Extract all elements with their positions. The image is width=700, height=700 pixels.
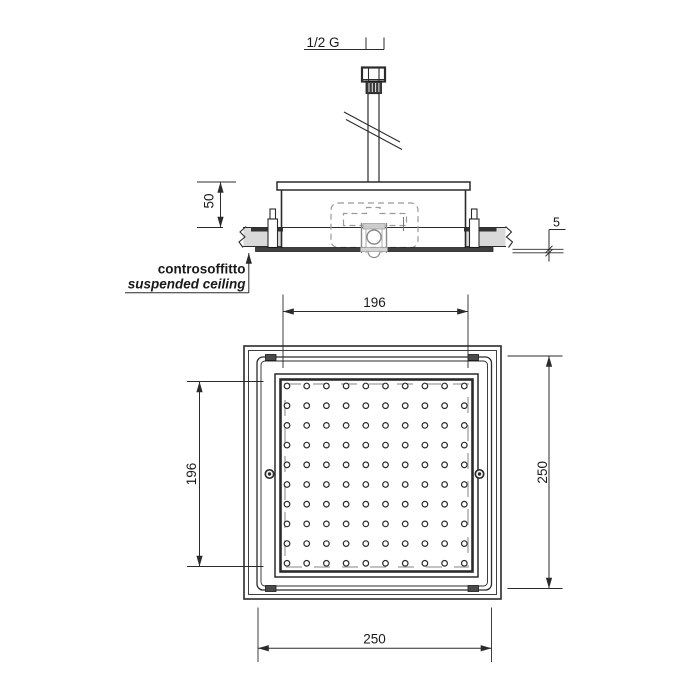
nozzle: [422, 541, 428, 547]
nozzle: [442, 423, 448, 429]
nozzle: [324, 462, 330, 468]
elbow-bottom-arc: [368, 252, 380, 258]
nozzle: [363, 423, 369, 429]
nozzle: [343, 383, 349, 389]
clamp-screw-left: [268, 219, 278, 248]
elbow-bore-circle: [367, 230, 381, 244]
ceiling-label-italian: controsoffitto: [158, 262, 246, 277]
nozzle: [363, 383, 369, 389]
nozzle: [383, 423, 389, 429]
technical-drawing-page: 1/2 G: [0, 0, 700, 700]
nozzle: [462, 561, 468, 567]
nozzle: [442, 442, 448, 448]
nozzle: [402, 423, 408, 429]
clamp-bracket-left: [251, 228, 283, 232]
dim-50-value: 50: [202, 193, 217, 208]
nozzle: [383, 521, 389, 527]
nozzle: [324, 501, 330, 507]
nozzle: [422, 403, 428, 409]
nozzle: [383, 403, 389, 409]
plan-view: 196 196 250 250: [184, 295, 563, 663]
nozzle: [304, 521, 310, 527]
nozzle: [324, 383, 330, 389]
nozzle: [304, 383, 310, 389]
corner-clip-top-right: [468, 355, 479, 361]
clamp-screw-tip-left: [270, 209, 276, 219]
nozzle: [284, 383, 290, 389]
nozzle: [304, 541, 310, 547]
dim-196-left-value: 196: [184, 463, 199, 486]
nozzle: [462, 383, 468, 389]
screw-hole-left: [268, 472, 271, 475]
nozzle: [343, 521, 349, 527]
nozzle: [383, 501, 389, 507]
ceiling-label-english: suspended ceiling: [128, 277, 247, 292]
ceiling-break-right: [506, 227, 513, 248]
nozzle: [422, 521, 428, 527]
nozzle: [442, 561, 448, 567]
nozzle: [383, 482, 389, 488]
bottom-face-plate: [256, 248, 494, 258]
nozzle: [462, 403, 468, 409]
nozzle: [324, 521, 330, 527]
clamp-screw-right: [470, 219, 480, 248]
face-plate-left: [256, 248, 361, 252]
nozzle: [343, 482, 349, 488]
nozzle: [363, 501, 369, 507]
nozzle: [422, 482, 428, 488]
nozzle: [324, 561, 330, 567]
nozzle: [422, 462, 428, 468]
nozzle: [284, 501, 290, 507]
nozzle: [383, 462, 389, 468]
dim-5-extension-lines: [513, 230, 566, 253]
nozzle: [462, 442, 468, 448]
nozzle: [402, 442, 408, 448]
nozzle: [284, 423, 290, 429]
nozzle: [284, 521, 290, 527]
nozzle: [442, 521, 448, 527]
nozzle: [442, 383, 448, 389]
nozzle: [343, 501, 349, 507]
nozzle: [402, 521, 408, 527]
dimension-250-bottom: 250: [258, 608, 492, 663]
nozzle: [462, 462, 468, 468]
nozzle: [442, 482, 448, 488]
nozzle: [422, 561, 428, 567]
nozzle: [304, 423, 310, 429]
nozzle: [422, 423, 428, 429]
nozzle: [363, 403, 369, 409]
nozzle: [324, 423, 330, 429]
nozzle: [402, 462, 408, 468]
thread-size-label: 1/2 G: [306, 35, 339, 50]
water-supply-pipe: [368, 94, 379, 183]
nozzle: [383, 561, 389, 567]
nozzle: [284, 541, 290, 547]
nozzle: [422, 383, 428, 389]
nozzle: [442, 501, 448, 507]
nozzle: [442, 541, 448, 547]
clamp-screw-tip-right: [472, 209, 478, 219]
nozzle: [383, 541, 389, 547]
nozzle: [363, 521, 369, 527]
ceiling-callout: controsoffitto suspended ceiling: [125, 253, 249, 293]
nozzle: [462, 423, 468, 429]
corner-clip-bottom-right: [468, 586, 479, 592]
nozzle: [422, 442, 428, 448]
dimension-250-right: 250: [508, 356, 563, 589]
nozzle: [422, 501, 428, 507]
nozzle: [343, 403, 349, 409]
nozzle: [284, 442, 290, 448]
nozzle: [402, 383, 408, 389]
nozzle: [383, 383, 389, 389]
nozzle: [284, 462, 290, 468]
dimension-5: 5: [513, 216, 566, 262]
elbow-nut-section: [363, 224, 385, 230]
nozzle: [383, 442, 389, 448]
nozzle: [324, 482, 330, 488]
nozzle: [343, 462, 349, 468]
nozzle: [402, 541, 408, 547]
shower-head-technical-drawing: 1/2 G: [0, 0, 700, 700]
nozzle: [363, 462, 369, 468]
nozzle: [402, 561, 408, 567]
nozzle: [462, 541, 468, 547]
nozzle: [324, 541, 330, 547]
dim-196-top-value: 196: [363, 295, 386, 310]
thread-connector: [362, 68, 385, 94]
section-view: 1/2 G: [125, 35, 566, 293]
nozzle: [304, 462, 310, 468]
nozzle: [343, 541, 349, 547]
nozzle: [324, 403, 330, 409]
nozzle: [442, 462, 448, 468]
dim-5-value: 5: [553, 216, 560, 230]
face-plate-right: [388, 248, 494, 252]
dim-250-bottom-value: 250: [363, 632, 386, 647]
nozzle: [402, 403, 408, 409]
nozzle: [304, 561, 310, 567]
nozzle: [462, 482, 468, 488]
screw-hole-right: [478, 472, 481, 475]
nozzle: [363, 561, 369, 567]
nozzle: [304, 482, 310, 488]
nozzle: [284, 482, 290, 488]
nozzle: [343, 442, 349, 448]
housing-top-plate: [277, 182, 470, 190]
side-screw-right: [475, 470, 483, 478]
nozzle: [284, 561, 290, 567]
clamp-bracket-right: [464, 228, 497, 232]
nozzle: [363, 442, 369, 448]
nozzle: [462, 521, 468, 527]
face-plate-inlet-gap: [361, 248, 388, 252]
nozzle: [324, 442, 330, 448]
nozzle: [462, 501, 468, 507]
nozzle: [284, 403, 290, 409]
corner-clip-top-left: [266, 355, 277, 361]
nozzle: [304, 403, 310, 409]
nozzle: [363, 482, 369, 488]
nozzle: [402, 501, 408, 507]
nozzle: [343, 561, 349, 567]
nozzle: [363, 541, 369, 547]
nozzle: [304, 442, 310, 448]
dim-250-right-value: 250: [535, 461, 550, 484]
corner-clip-bottom-left: [266, 586, 277, 592]
nozzle: [304, 501, 310, 507]
nozzle: [442, 403, 448, 409]
nozzle: [402, 482, 408, 488]
nozzle: [343, 423, 349, 429]
dimension-50: 50: [197, 182, 236, 228]
side-screw-left: [265, 470, 273, 478]
